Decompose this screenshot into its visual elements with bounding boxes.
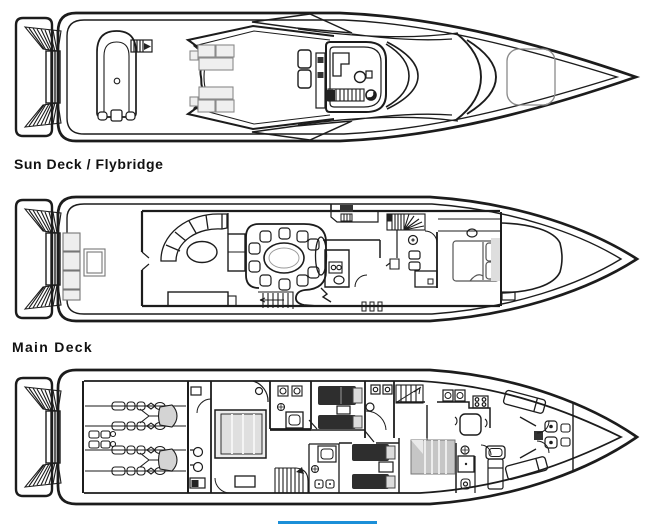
svg-text:Main Deck: Main Deck <box>12 339 93 355</box>
svg-text:Sun Deck / Flybridge: Sun Deck / Flybridge <box>14 156 163 172</box>
